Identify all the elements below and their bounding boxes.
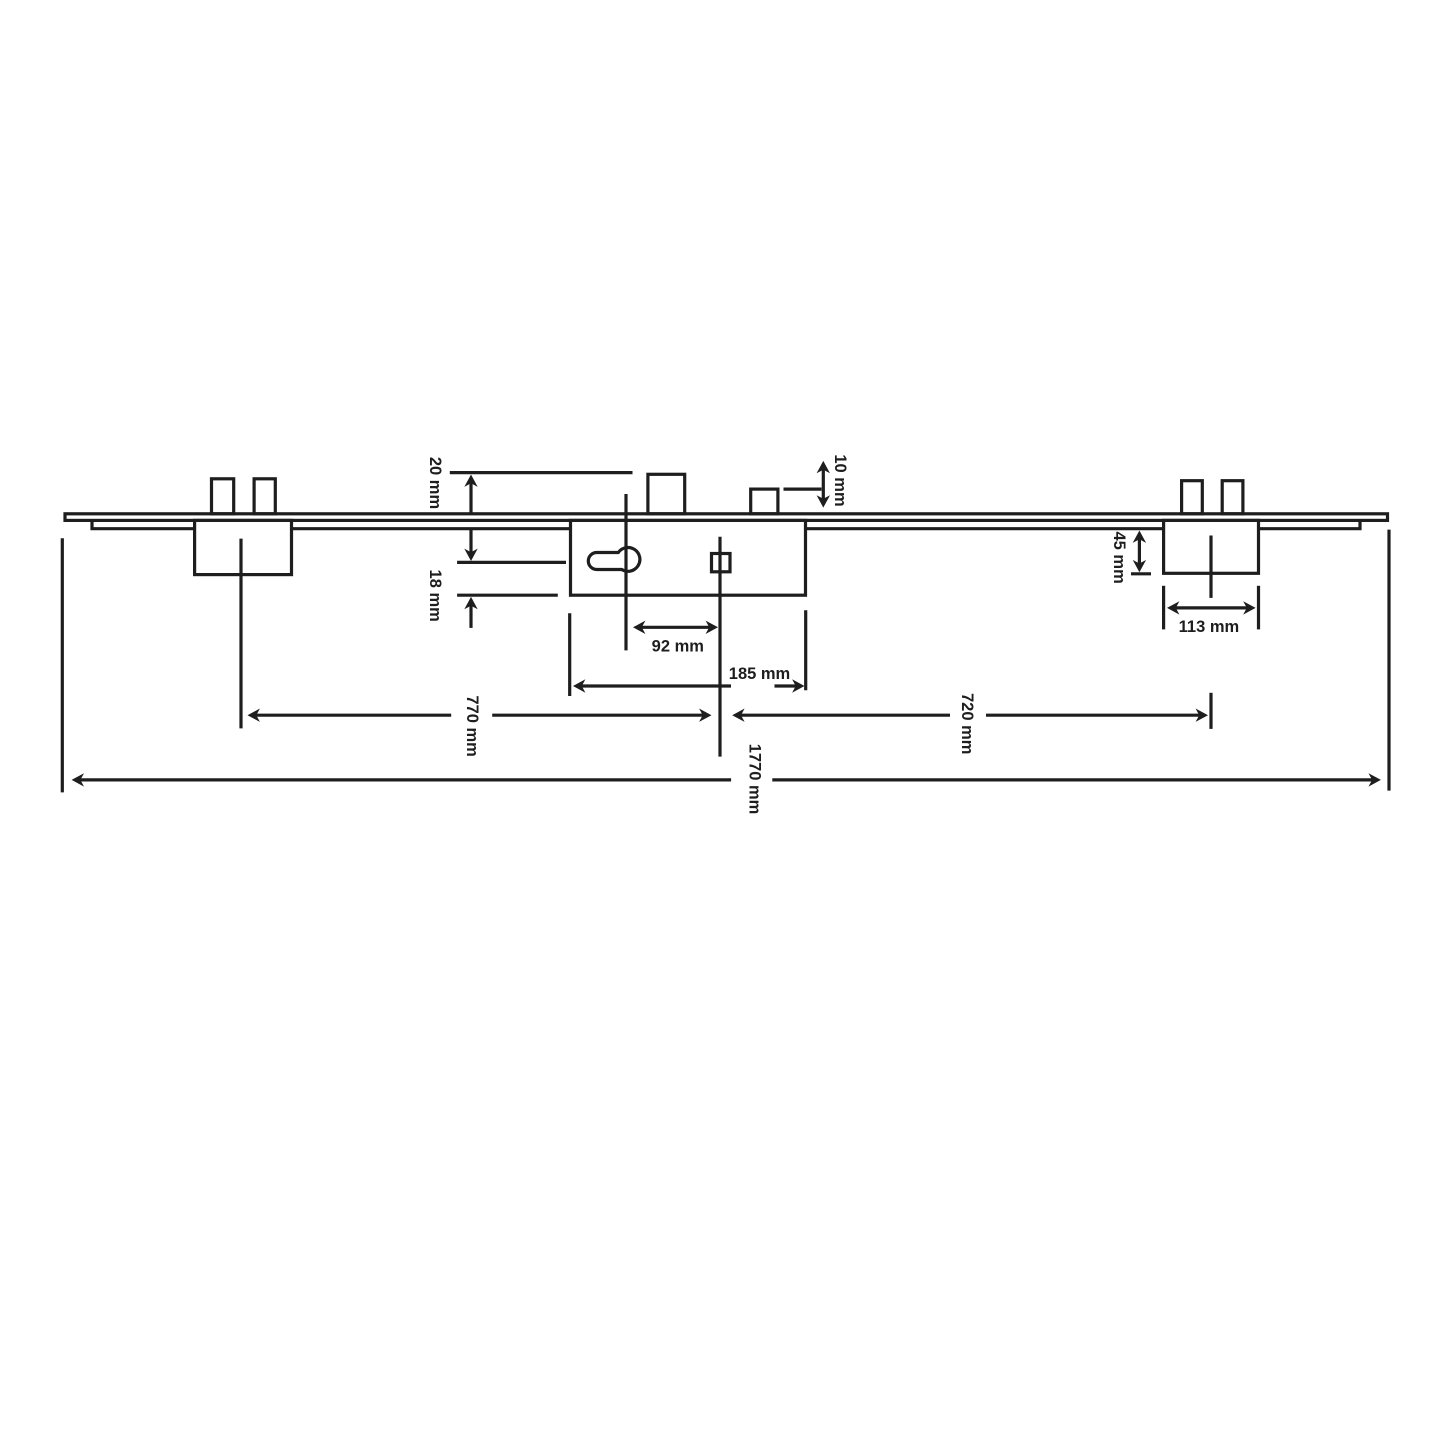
svg-text:45 mm: 45 mm [1110, 531, 1128, 583]
svg-text:92 mm: 92 mm [652, 638, 704, 656]
svg-text:113 mm: 113 mm [1179, 618, 1240, 636]
svg-text:1770 mm: 1770 mm [746, 744, 764, 815]
svg-text:18 mm: 18 mm [426, 570, 444, 622]
svg-text:720 mm: 720 mm [958, 693, 976, 754]
svg-text:185 mm: 185 mm [729, 665, 790, 683]
svg-text:10 mm: 10 mm [831, 454, 849, 506]
svg-text:770 mm: 770 mm [463, 695, 481, 756]
svg-text:20 mm: 20 mm [426, 457, 444, 509]
